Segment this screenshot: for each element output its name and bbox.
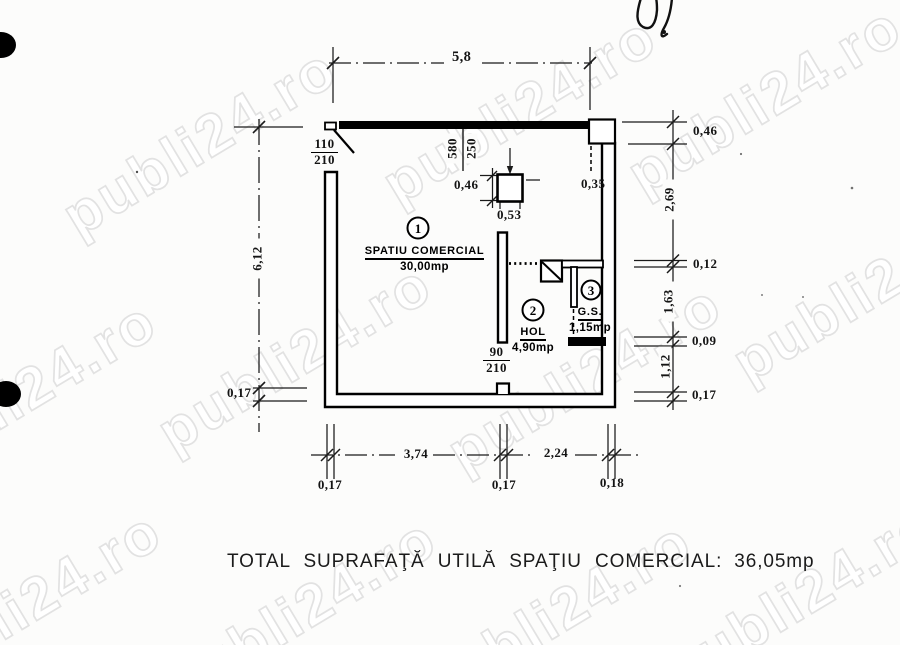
total-area-line: TOTAL SUPRAFAŢĂ UTILĂ SPAŢIU COMERCIAL:3… xyxy=(227,551,815,573)
column-pillar xyxy=(498,175,523,202)
room-3-label: G.S. 1,15mp xyxy=(556,302,624,334)
room-3-name: G.S. xyxy=(578,306,603,321)
total-area-value: 36,05mp xyxy=(734,551,814,572)
room-3-area: 1,15mp xyxy=(556,322,624,334)
window-width-label: 580 xyxy=(446,134,459,164)
dim-bottom-wall-3: 0,18 xyxy=(594,475,630,491)
room-1-name: SPATIU COMERCIAL xyxy=(365,245,485,260)
scan-artifacts xyxy=(0,32,853,587)
dim-bottom-wall-1: 0,17 xyxy=(312,477,348,493)
door-height-label: 210 xyxy=(483,361,510,376)
dim-right-5: 0,09 xyxy=(692,333,716,349)
dim-right-2: 2,69 xyxy=(663,180,676,220)
dim-bottom-2: 2,24 xyxy=(536,445,576,461)
dim-right-4: 1,63 xyxy=(662,282,675,322)
pen-scribble xyxy=(637,0,672,36)
room-3-number: 3 xyxy=(581,283,601,299)
room-2-name: HOL xyxy=(520,326,545,341)
window-height-label: 250 xyxy=(465,134,478,164)
floor-plan-drawing xyxy=(0,0,900,645)
gs-top-wall xyxy=(562,261,603,268)
dim-left-wall: 0,17 xyxy=(227,385,251,401)
window-wall xyxy=(339,121,590,129)
dim-right-1: 0,46 xyxy=(693,123,717,139)
dim-right-3: 0,12 xyxy=(693,256,717,272)
bottom-wall-notch xyxy=(497,384,509,395)
column-width-label: 0,53 xyxy=(497,207,521,223)
wall-offset-label: 0,35 xyxy=(581,176,605,192)
dim-bottom-1: 3,74 xyxy=(396,446,436,462)
dim-left-height: 6,12 xyxy=(251,239,264,279)
room-2-number: 2 xyxy=(523,303,543,319)
room-1-label: SPATIU COMERCIAL 30,00mp xyxy=(352,241,497,273)
corner-pillar xyxy=(589,120,615,144)
total-area-label: TOTAL SUPRAFAŢĂ UTILĂ SPAŢIU COMERCIAL: xyxy=(227,551,722,572)
hole-punch-mark xyxy=(0,32,16,58)
column-depth-label: 0,46 xyxy=(454,177,478,193)
gs-left-wall xyxy=(571,267,577,307)
door-width-label: 110 xyxy=(311,137,338,153)
dim-right-6: 1,12 xyxy=(659,347,672,387)
dim-right-7: 0,17 xyxy=(692,387,716,403)
interior-door-size: 90 210 xyxy=(483,345,510,375)
scanned-floor-plan-page: publi24.ro publi24.ro publi24.ro publi24… xyxy=(0,0,900,645)
dim-bottom-wall-2: 0,17 xyxy=(486,477,522,493)
gs-bottom-wall xyxy=(568,337,606,346)
dim-top-width: 5,8 xyxy=(452,49,471,66)
room-1-area: 30,00mp xyxy=(352,261,497,273)
hole-punch-mark xyxy=(0,381,21,407)
door-height-label: 210 xyxy=(311,153,338,168)
entrance-door-jamb xyxy=(325,123,336,130)
door-width-label: 90 xyxy=(483,345,510,361)
room-1-number: 1 xyxy=(408,221,428,237)
entrance-door-size: 110 210 xyxy=(311,137,338,167)
